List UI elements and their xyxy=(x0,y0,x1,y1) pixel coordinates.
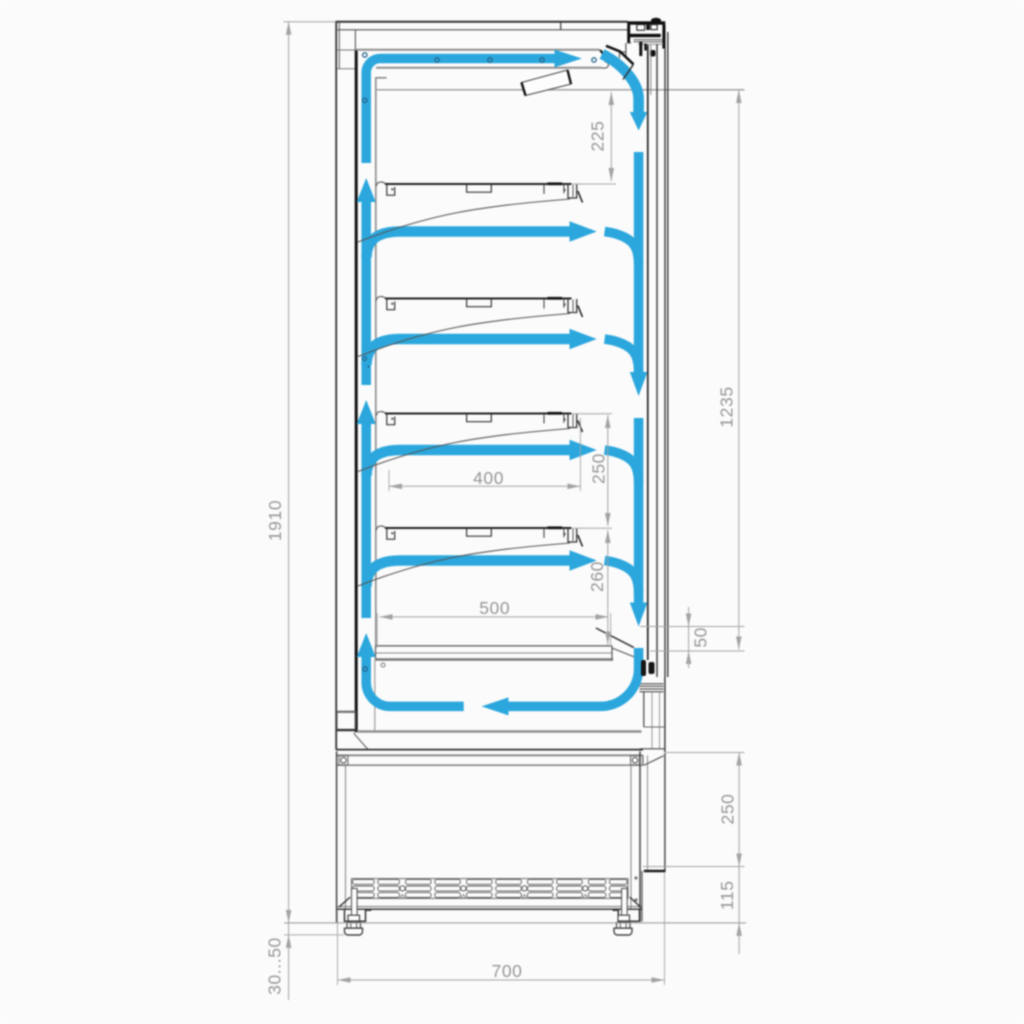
svg-text:700: 700 xyxy=(492,961,523,981)
svg-text:1910: 1910 xyxy=(265,500,285,541)
svg-text:400: 400 xyxy=(473,468,504,488)
svg-text:260: 260 xyxy=(587,561,607,592)
svg-text:225: 225 xyxy=(588,121,608,152)
svg-text:50: 50 xyxy=(690,627,710,648)
svg-text:500: 500 xyxy=(479,598,510,618)
svg-text:1235: 1235 xyxy=(716,386,736,427)
svg-text:30...50: 30...50 xyxy=(265,937,285,995)
svg-text:250: 250 xyxy=(718,794,738,825)
svg-text:115: 115 xyxy=(717,880,737,910)
svg-text:250: 250 xyxy=(589,453,609,484)
